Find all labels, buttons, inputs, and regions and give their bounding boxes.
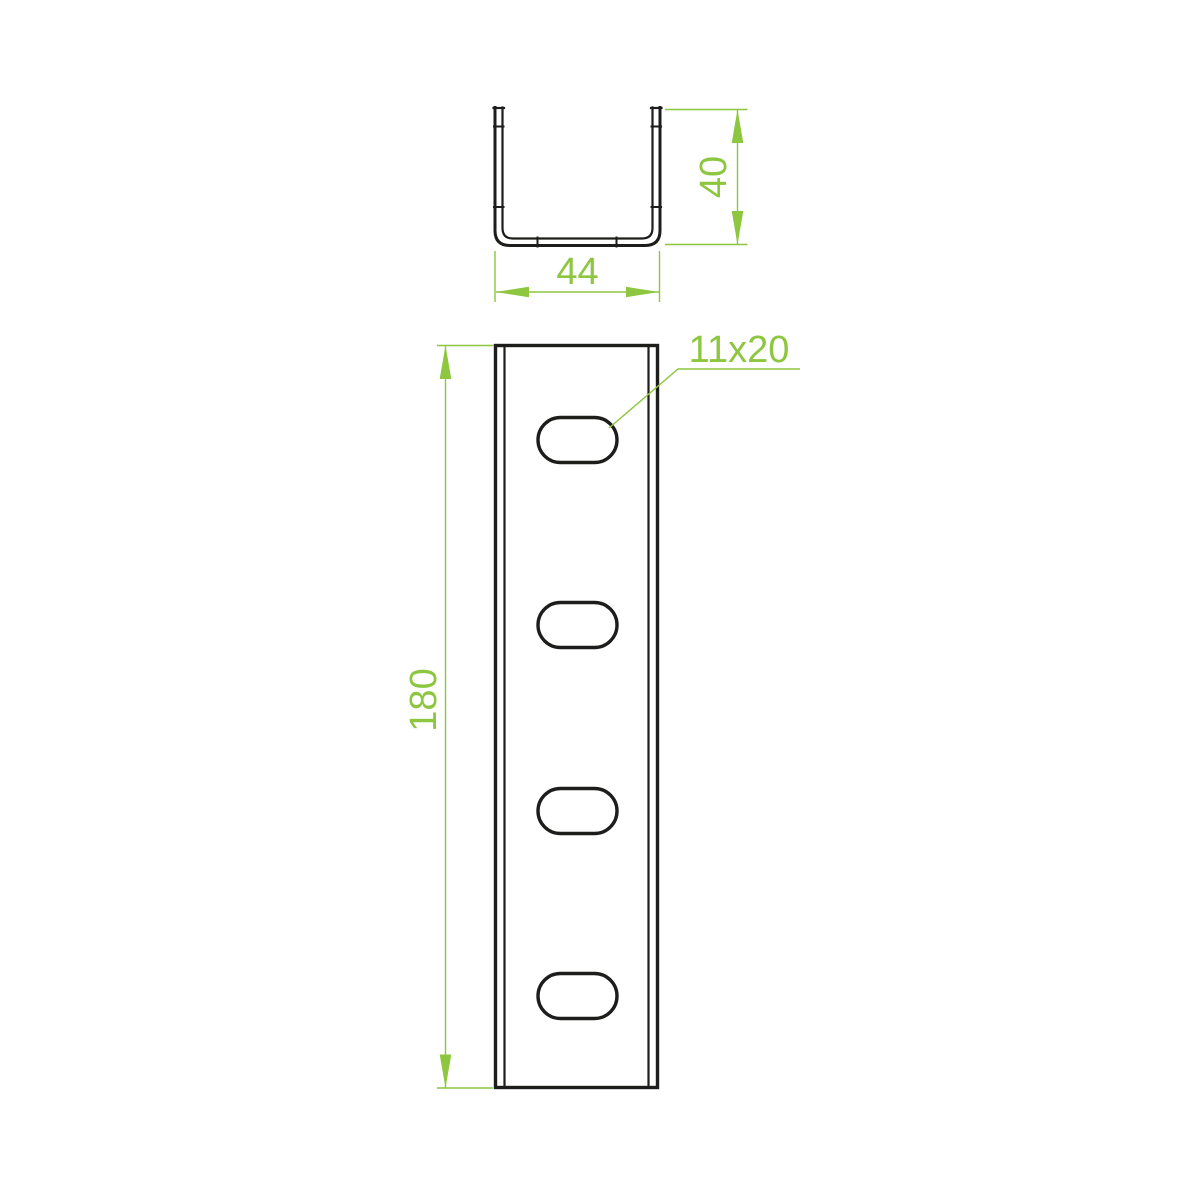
height-dimension: 40 [665, 110, 748, 245]
channel-outer-profile [495, 108, 660, 246]
length-dimension: 180 [403, 346, 494, 1089]
height-dimension-label: 40 [693, 156, 735, 198]
channel-inner-profile [503, 108, 653, 239]
slot-hole-2 [538, 603, 617, 648]
width-dimension-label: 44 [556, 251, 598, 293]
arrow-down [440, 1055, 452, 1089]
arrow-right [626, 287, 660, 297]
leader-line [609, 369, 800, 428]
arrow-left [496, 287, 530, 297]
arrow-up [732, 110, 744, 144]
arrow-down [732, 211, 744, 245]
drawing-sheet: 44 40 180 11x20 [0, 0, 1200, 1200]
front-view [496, 346, 658, 1088]
slot-size-label: 11x20 [689, 329, 790, 371]
slot-hole-1 [538, 418, 617, 463]
arrow-up [440, 346, 452, 380]
length-dimension-label: 180 [403, 668, 445, 731]
width-dimension: 44 [495, 251, 660, 302]
cross-section-view [494, 108, 662, 247]
slot-hole-3 [538, 789, 617, 834]
technical-drawing: 44 40 180 11x20 [0, 0, 1200, 1200]
front-view-outline [496, 346, 658, 1088]
slot-hole-4 [538, 974, 617, 1019]
